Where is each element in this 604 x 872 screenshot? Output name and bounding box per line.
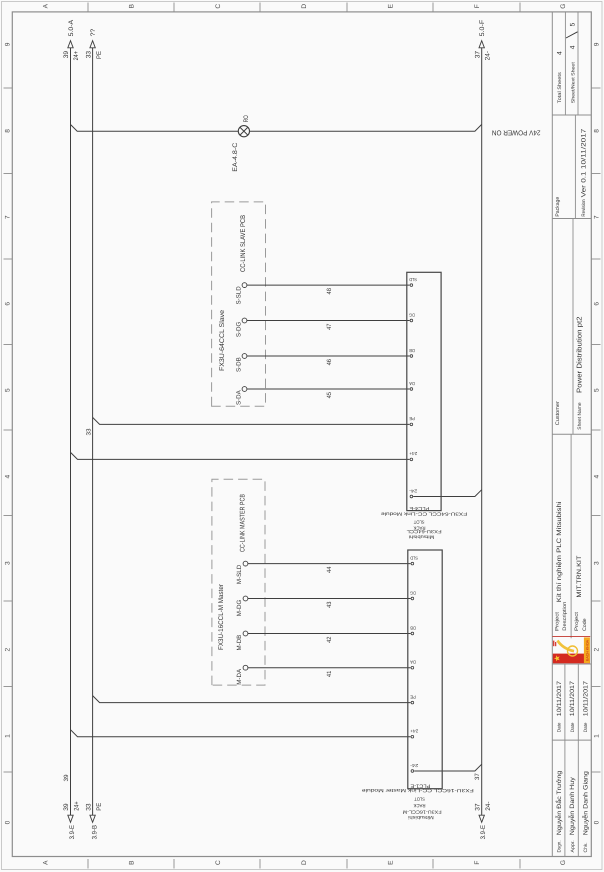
svg-text:PLC1-E: PLC1-E [410,783,431,789]
svg-text:MIT.TRN.KIT: MIT.TRN.KIT [576,555,583,597]
svg-text:39: 39 [63,774,70,782]
svg-text:PE: PE [96,802,103,811]
svg-text:FX3U-64CCL Slave: FX3U-64CCL Slave [219,310,226,371]
svg-text:3.9-E: 3.9-E [480,824,487,839]
svg-text:F: F [474,4,481,8]
svg-text:4: 4 [557,51,564,55]
svg-text:Revision: Revision [581,199,587,216]
svg-text:SLOT: SLOT [414,796,425,801]
svg-text:FX3U-16CCL-M: FX3U-16CCL-M [403,809,442,814]
svg-text:5: 5 [4,388,11,392]
svg-text:7: 7 [4,215,11,219]
svg-text:5: 5 [593,388,600,392]
svg-text:C: C [215,4,222,9]
svg-text:Code: Code [582,618,588,631]
svg-text:10/11/2017: 10/11/2017 [583,680,590,716]
svg-text:33: 33 [86,428,93,436]
svg-text:3: 3 [4,561,11,565]
svg-text:48: 48 [326,288,333,295]
svg-text:10/11/2017: 10/11/2017 [569,680,576,716]
svg-text:24+: 24+ [73,51,80,61]
svg-text:33: 33 [86,51,93,59]
svg-text:B: B [129,860,136,865]
svg-text:Ver 0.1 10/11/2017: Ver 0.1 10/11/2017 [580,128,587,197]
svg-text:G: G [560,4,567,9]
svg-text:FX3U-64CCL CC-Link Module: FX3U-64CCL CC-Link Module [381,512,468,517]
svg-text:D: D [301,4,308,9]
svg-text:1: 1 [593,734,600,738]
svg-text:Sheet/Next Sheet: Sheet/Next Sheet [570,61,575,103]
svg-text:S-DA: S-DA [235,389,242,405]
svg-text:24+: 24+ [73,801,80,811]
svg-text:CC-LINK MASTER PCB: CC-LINK MASTER PCB [239,494,246,552]
svg-text:BACH KHOA: BACH KHOA [586,639,590,661]
svg-text:6: 6 [4,302,11,306]
svg-text:Customer: Customer [555,401,561,425]
svg-text:FX3U-16CCL CC-Link Master Modu: FX3U-16CCL CC-Link Master Module [361,788,474,793]
svg-text:5.0-F: 5.0-F [479,20,486,37]
svg-text:39: 39 [63,803,70,811]
svg-text:42: 42 [326,636,333,643]
svg-text:RACK: RACK [413,803,426,808]
svg-text:47: 47 [326,323,333,330]
svg-text:24-: 24- [485,51,492,60]
svg-text:44: 44 [326,566,333,573]
svg-text:33: 33 [86,803,93,811]
svg-text:F: F [474,861,481,865]
svg-text:B: B [129,3,136,8]
svg-text:M-DA: M-DA [236,668,243,685]
svg-text:Dsgn.: Dsgn. [557,840,563,852]
svg-text:S-DB: S-DB [235,357,242,372]
svg-text:DG: DG [409,312,415,317]
svg-text:PE: PE [409,416,415,421]
svg-text:Date: Date [583,722,589,732]
svg-text:Kit thí nghiệm PLC Mitsubishi: Kit thí nghiệm PLC Mitsubishi [556,502,563,603]
svg-text:41: 41 [326,670,333,677]
svg-text:24+: 24+ [410,729,418,734]
svg-text:DG: DG [410,590,416,595]
svg-text:CC-LINK SLAVE PCB: CC-LINK SLAVE PCB [240,215,247,272]
svg-text:DA: DA [410,660,416,665]
svg-text:37: 37 [474,51,481,59]
svg-text:37: 37 [474,773,481,781]
svg-text:37: 37 [474,803,481,811]
svg-text:4: 4 [4,475,11,479]
svg-text:7: 7 [593,215,600,219]
svg-text:8: 8 [4,129,11,133]
svg-text:PE: PE [96,50,103,59]
svg-text:Power Distribution pt2: Power Distribution pt2 [576,316,584,393]
svg-text:4: 4 [570,45,577,49]
svg-text:2: 2 [593,647,600,651]
svg-text:S-DG: S-DG [235,322,242,338]
svg-text:2: 2 [4,647,11,651]
svg-text:??: ?? [90,28,97,36]
svg-text:M-DG: M-DG [236,600,243,617]
svg-text:Date: Date [557,722,563,732]
svg-text:DB: DB [410,625,416,630]
svg-text:Nguyễn Danh Giang: Nguyễn Danh Giang [582,771,590,836]
svg-text:A: A [42,860,49,865]
svg-text:FX3U-16CCL-M Master: FX3U-16CCL-M Master [218,583,225,650]
svg-text:A: A [42,3,49,8]
svg-text:D: D [301,860,308,865]
svg-text:SLD: SLD [409,277,417,282]
svg-text:24-: 24- [485,801,492,810]
svg-text:EA-4.8-C: EA-4.8-C [232,142,239,171]
svg-text:0: 0 [4,820,11,824]
svg-text:DA: DA [409,381,415,386]
svg-text:Sheet Name: Sheet Name [577,402,583,430]
svg-text:Appr.: Appr. [570,840,576,852]
svg-text:M-SLD: M-SLD [236,564,243,584]
svg-text:46: 46 [326,358,333,365]
svg-text:M-DB: M-DB [236,635,243,651]
svg-text:PLC4-E: PLC4-E [409,505,430,511]
svg-text:10/11/2017: 10/11/2017 [556,680,563,716]
svg-text:Chk.: Chk. [583,842,589,852]
svg-text:Package: Package [555,197,561,217]
svg-text:24-: 24- [409,488,418,493]
svg-text:SLD: SLD [410,555,418,560]
svg-text:6: 6 [593,302,600,306]
svg-text:5.0-A: 5.0-A [68,19,75,36]
svg-text:DB: DB [409,348,415,353]
svg-text:45: 45 [326,391,333,398]
svg-text:Mitsubishi: Mitsubishi [409,535,435,540]
svg-text:Total Sheets: Total Sheets [557,72,563,104]
svg-text:Date: Date [570,722,576,732]
svg-text:24V POWER ON: 24V POWER ON [492,129,541,136]
svg-text:3: 3 [593,561,600,565]
svg-text:E: E [388,3,395,8]
svg-text:RO: RO [243,115,250,122]
svg-text:S-SLD: S-SLD [235,286,242,305]
svg-text:3.9-E: 3.9-E [69,824,76,839]
svg-text:5: 5 [570,22,577,26]
svg-text:24-: 24- [410,763,419,768]
svg-text:3.9-B: 3.9-B [91,824,98,839]
svg-text:9: 9 [4,42,11,46]
svg-text:0: 0 [593,820,600,824]
svg-text:8: 8 [593,129,600,133]
svg-text:24+: 24+ [409,451,417,456]
svg-text:39: 39 [63,51,70,59]
svg-text:FX3U-64CCL: FX3U-64CCL [406,529,441,534]
svg-text:1: 1 [4,734,11,738]
svg-text:E: E [388,860,395,865]
svg-text:G: G [560,860,567,865]
svg-text:9: 9 [593,42,600,46]
svg-text:43: 43 [326,601,333,608]
svg-text:Nguyễn Đắc Trưởng: Nguyễn Đắc Trưởng [555,770,563,835]
svg-text:Project: Project [574,611,580,631]
svg-text:PE: PE [410,694,416,699]
svg-text:C: C [215,860,222,865]
svg-text:4: 4 [593,475,600,479]
svg-text:Nguyễn Danh Huy: Nguyễn Danh Huy [568,776,576,835]
svg-text:SLOT: SLOT [414,520,425,525]
svg-text:Description: Description [562,601,568,630]
svg-text:Project: Project [555,611,561,631]
svg-text:Mitsubishi: Mitsubishi [408,815,434,820]
